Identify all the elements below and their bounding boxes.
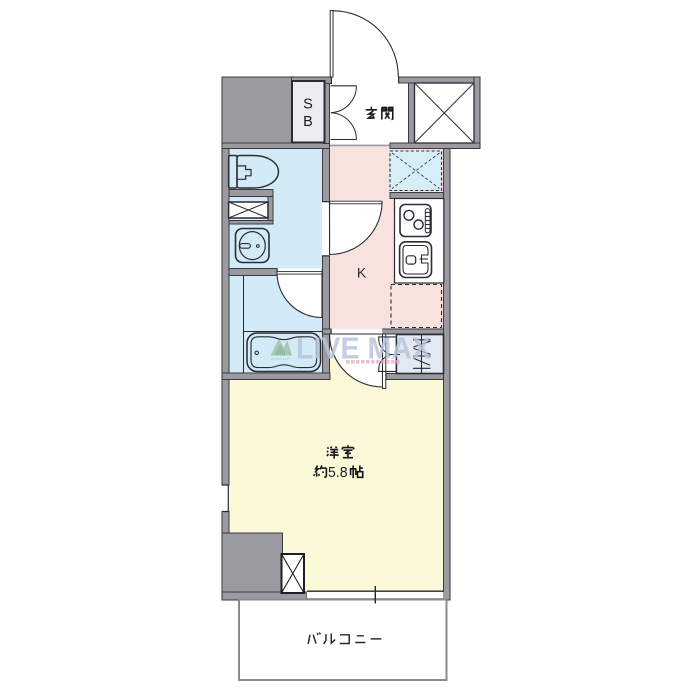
svg-text:S: S [303, 97, 313, 113]
svg-text:K: K [357, 265, 367, 281]
svg-text:5.8: 5.8 [328, 465, 348, 481]
svg-text:B: B [303, 114, 313, 130]
svg-text:GROUP: GROUP [271, 357, 290, 361]
